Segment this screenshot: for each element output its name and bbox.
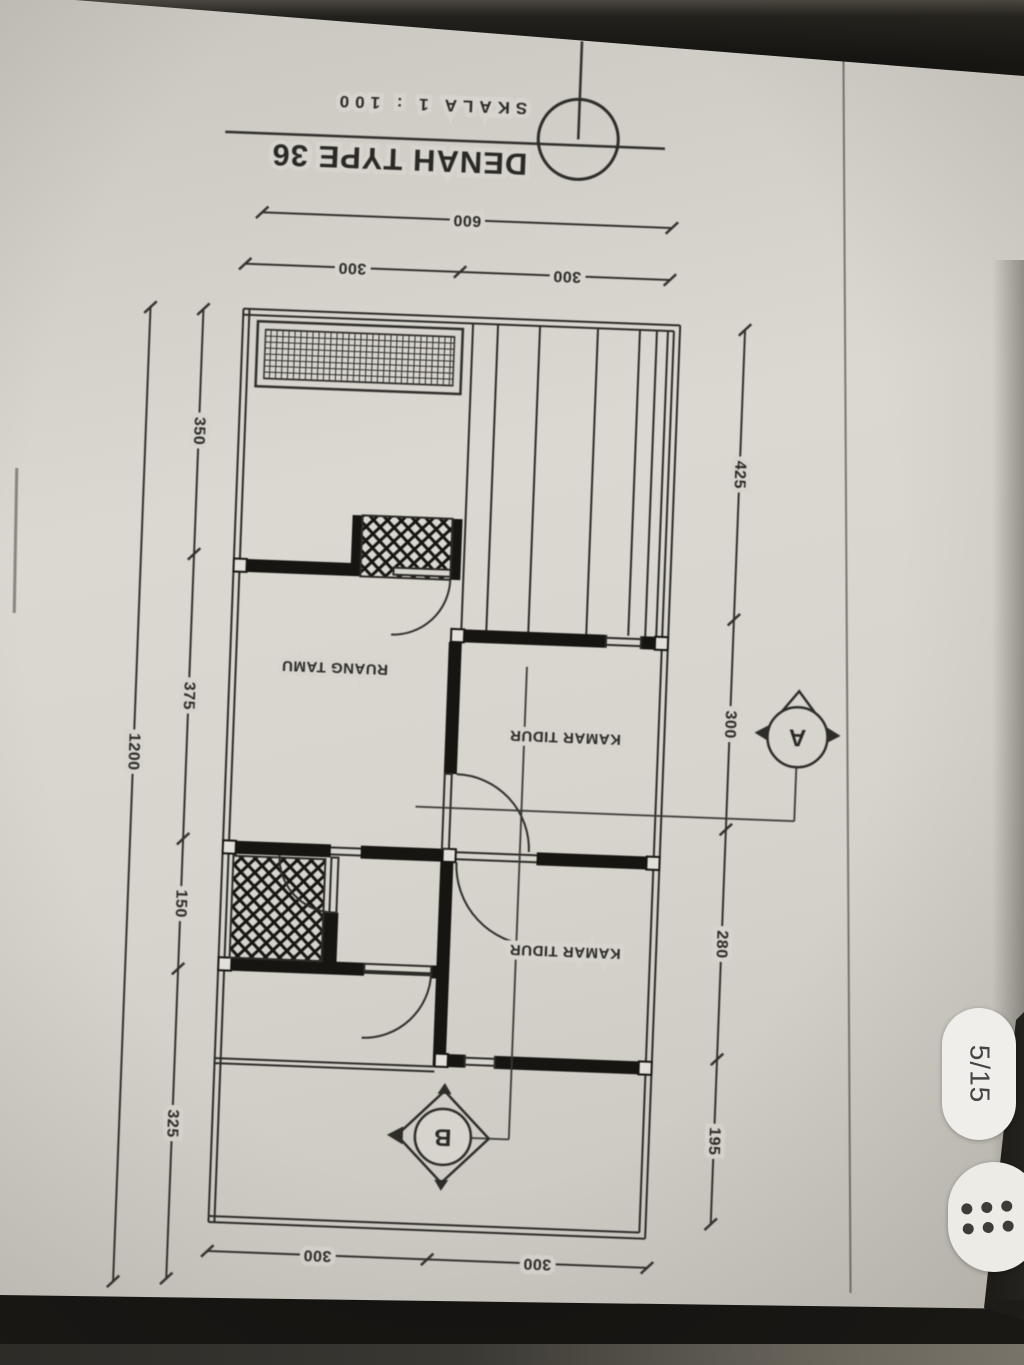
door-sills — [326, 844, 537, 979]
room-label-bedroom2: KAMAR TIDUR — [509, 941, 621, 962]
page-indicator: 5/15 — [942, 1008, 1016, 1140]
dim-label-right-1: 425 — [730, 460, 748, 489]
menu-button[interactable] — [948, 1162, 1024, 1272]
dim-right — [704, 324, 751, 1231]
dim-label-right-3: 280 — [712, 930, 730, 959]
rear-terrace-line — [215, 1058, 435, 1071]
page-edge-shadow — [992, 260, 1024, 1300]
floor-plan-drawing: SKALA 1 : 100 DENAH TYPE 36 600 300 300 … — [36, 4, 925, 1325]
dim-label-left-4: 325 — [163, 1109, 181, 1138]
drawing-title: DENAH TYPE 36 — [271, 137, 528, 182]
dim-label-top-width: 600 — [453, 211, 482, 229]
carport-roof-hatch — [256, 321, 463, 394]
section-b-letter: B — [434, 1123, 452, 1151]
section-marker-a: A — [753, 690, 842, 769]
dim-label-left-2: 375 — [180, 681, 198, 710]
dim-bottom — [201, 1245, 653, 1274]
dim-label-bottom-left: 300 — [303, 1246, 332, 1264]
dim-label-left-1: 350 — [190, 417, 208, 446]
section-a-letter: A — [788, 723, 806, 751]
title-symbol-stem — [578, 41, 582, 139]
room-label-bedroom1: KAMAR TIDUR — [509, 727, 621, 748]
dim-label-left-3: 150 — [172, 889, 190, 918]
dim-label-top-right: 300 — [553, 267, 582, 285]
dim-label-left-total: 1200 — [124, 733, 142, 771]
dim-label-right-4: 195 — [705, 1127, 723, 1156]
page-edge-line — [13, 468, 18, 613]
terrace-plank-lines — [461, 323, 668, 636]
grid-dots-icon — [961, 1200, 1014, 1234]
room-label-living: RUANG TAMU — [281, 657, 388, 678]
floor-plan-svg: SKALA 1 : 100 DENAH TYPE 36 600 300 300 … — [36, 4, 925, 1325]
scale-label: SKALA 1 : 100 — [333, 91, 527, 117]
dim-label-bottom-right: 300 — [523, 1255, 552, 1273]
dim-left — [107, 301, 210, 1290]
dim-label-top-left: 300 — [338, 259, 367, 277]
dim-label-right-2: 300 — [721, 710, 739, 739]
section-marker-b: B — [385, 1081, 491, 1193]
page-indicator-label: 5/15 — [963, 1045, 995, 1104]
table-surface-strip — [0, 1344, 1024, 1365]
